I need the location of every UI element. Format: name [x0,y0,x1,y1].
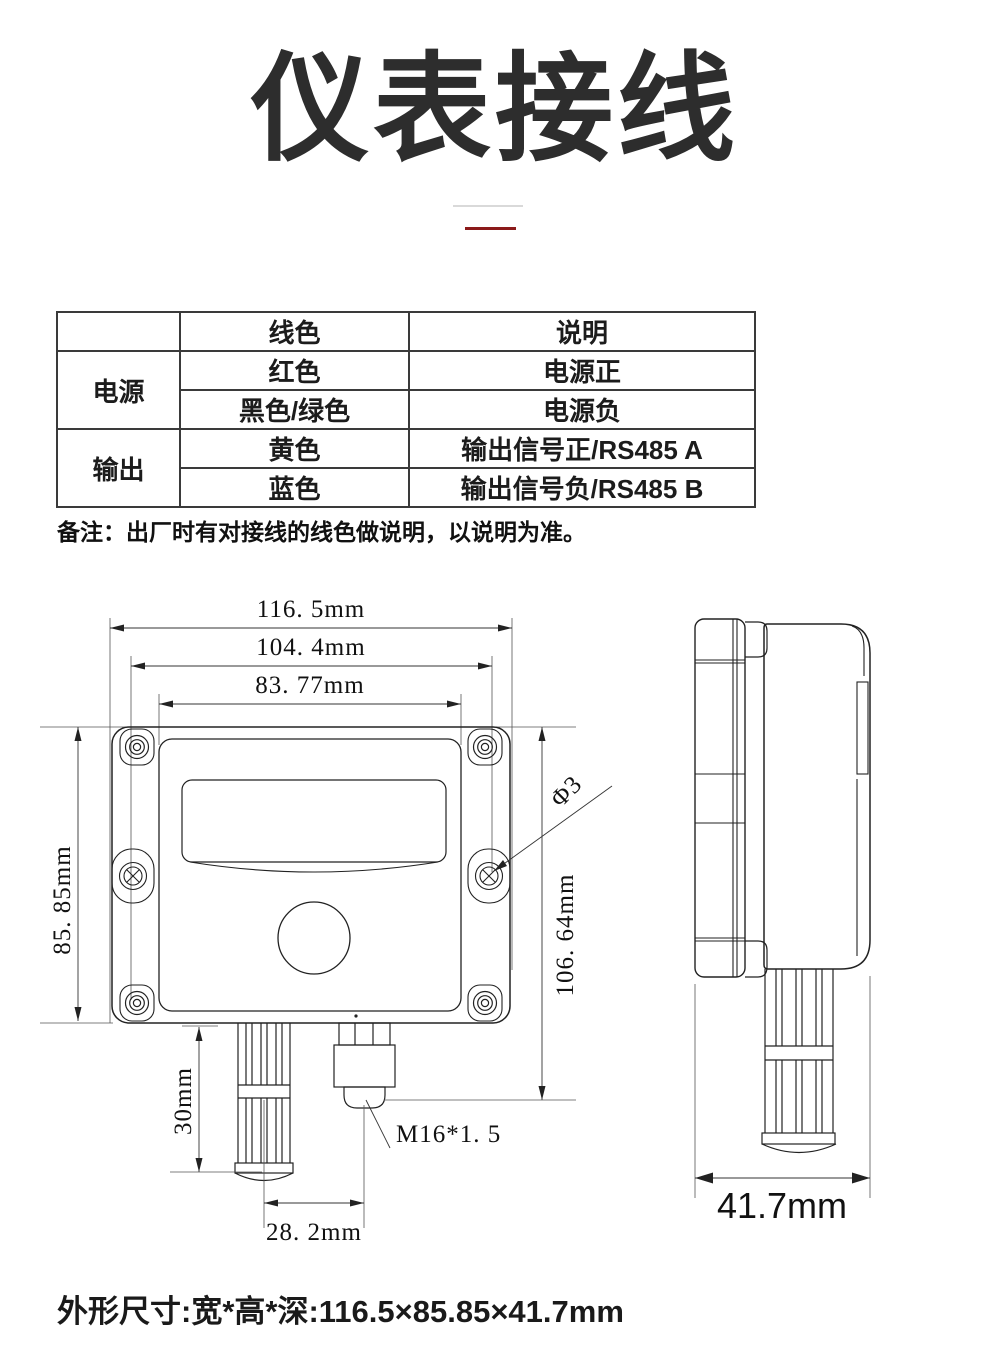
note-text: 备注：出厂时有对接线的线色做说明，以说明为准。 [57,513,586,547]
device-front-body [112,727,510,1023]
dim-probe-length: 30mm [170,1026,262,1172]
dim-label: 30mm [170,1067,197,1135]
table-row: 输出 黄色 输出信号正/RS485 A [57,429,755,468]
dim-label: Φ3 [546,771,588,813]
col-header-description: 说明 [409,312,755,351]
dim-width-lid: 83. 77mm [159,672,461,708]
dim-label: 28. 2mm [266,1219,362,1246]
wire-color-cell: 黄色 [180,429,409,468]
wire-desc-cell: 输出信号正/RS485 A [409,429,755,468]
display-window [182,780,446,872]
middle-screws [112,849,510,903]
dim-width-outer: 116. 5mm [110,596,512,632]
dim-label: 116. 5mm [257,596,365,623]
dim-label: 41.7mm [717,1185,847,1226]
dim-label: M16*1. 5 [396,1121,501,1148]
dim-height-body: 85. 85mm [40,727,113,1023]
front-view: 116. 5mm 104. 4mm 83. 77mm [40,596,612,1246]
table-header-row: 线色 说明 [57,312,755,351]
wire-color-cell: 红色 [180,351,409,390]
dimension-drawing: 116. 5mm 104. 4mm 83. 77mm [0,580,990,1290]
table-row: 电源 红色 电源正 [57,351,755,390]
page-title: 仪表接线 [0,40,990,182]
dim-height-total: 106. 64mm [384,727,579,1100]
corner-screws [126,736,497,1015]
title-divider-gray [453,205,523,207]
table-corner-cell [57,312,180,351]
page: 仪表接线 线色 说明 电源 红色 电源正 黑色/绿色 电源负 输出 黄色 输出信… [0,0,990,1368]
dim-label: 106. 64mm [552,874,579,997]
sensor-button-circle [278,902,350,974]
dim-label: 83. 77mm [255,672,364,699]
wire-desc-cell: 电源负 [409,390,755,429]
side-bracket [695,619,745,977]
wire-desc-cell: 输出信号负/RS485 B [409,468,755,507]
side-view: 41.7mm [695,619,870,1226]
wire-desc-cell: 电源正 [409,351,755,390]
group-label-power: 电源 [57,351,180,429]
wire-color-cell: 黑色/绿色 [180,390,409,429]
dim-label: 104. 4mm [256,634,365,661]
overall-dimensions-text: 外形尺寸:宽*高*深:116.5×85.85×41.7mm [57,1286,624,1331]
small-dot [354,1014,357,1017]
dim-width-mount: 104. 4mm [131,634,492,670]
probe-slats [776,969,822,1133]
gland-callout: M16*1. 5 [366,1100,501,1148]
col-header-wire-color: 线色 [180,312,409,351]
cable-gland [334,1023,395,1108]
wiring-table: 线色 说明 电源 红色 电源正 黑色/绿色 电源负 输出 黄色 输出信号正/RS… [56,311,756,508]
side-probe [762,969,836,1153]
side-body [745,622,870,977]
group-label-output: 输出 [57,429,180,507]
title-divider-red [465,227,516,230]
dim-label: 85. 85mm [49,845,76,954]
wire-color-cell: 蓝色 [180,468,409,507]
